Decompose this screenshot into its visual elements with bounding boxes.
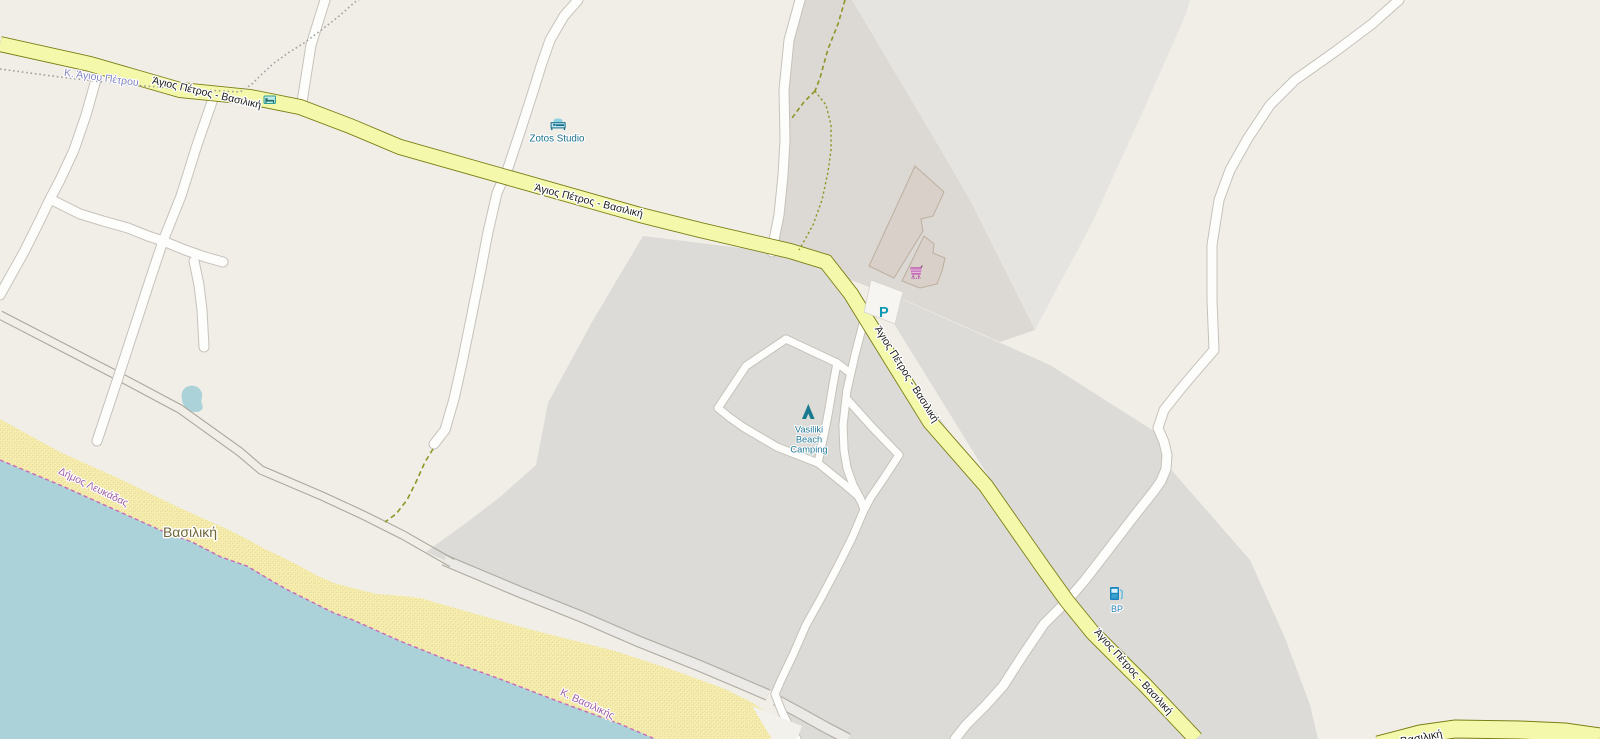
svg-text:Vasiliki: Vasiliki <box>795 425 823 435</box>
svg-text:Beach: Beach <box>796 435 822 445</box>
svg-text:Zotos Studio: Zotos Studio <box>529 134 585 145</box>
svg-text:P: P <box>879 305 889 321</box>
svg-text:Βασιλική: Βασιλική <box>163 524 217 540</box>
svg-text:BP: BP <box>1111 604 1123 614</box>
svg-text:Camping: Camping <box>790 445 827 455</box>
